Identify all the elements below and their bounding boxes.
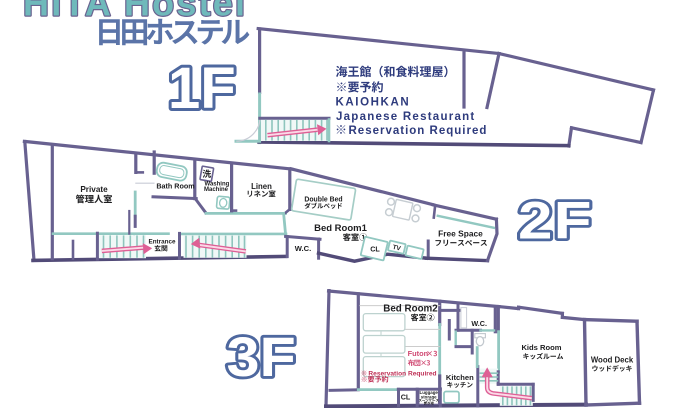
svg-text:W.C.: W.C. bbox=[471, 319, 487, 328]
svg-text:1F: 1F bbox=[168, 56, 236, 121]
svg-text:CL: CL bbox=[370, 245, 380, 254]
svg-text:Bed Room1: Bed Room1 bbox=[314, 223, 368, 234]
svg-text:Futon: Futon bbox=[408, 349, 429, 358]
svg-text:Wood Deck: Wood Deck bbox=[591, 355, 634, 364]
svg-text:Japanese Restaurant: Japanese Restaurant bbox=[336, 111, 475, 123]
svg-text:CL: CL bbox=[401, 393, 411, 402]
svg-text:Bath Room: Bath Room bbox=[156, 181, 194, 190]
svg-text:storage: storage bbox=[421, 394, 437, 399]
svg-text:Entrance: Entrance bbox=[149, 239, 176, 246]
svg-text:Kitchen: Kitchen bbox=[446, 373, 474, 382]
svg-text:Linen: Linen bbox=[251, 182, 272, 191]
svg-text:W.C.: W.C. bbox=[295, 244, 311, 253]
svg-text:KAIOHKAN: KAIOHKAN bbox=[336, 97, 411, 109]
svg-text:Free Space: Free Space bbox=[438, 229, 483, 239]
svg-text:Kids Room: Kids Room bbox=[521, 343, 561, 352]
svg-text:Double Bed: Double Bed bbox=[304, 196, 342, 203]
svg-text:Private: Private bbox=[80, 185, 108, 194]
svg-text:3F: 3F bbox=[227, 327, 296, 389]
svg-text:Reservation Required: Reservation Required bbox=[349, 125, 488, 137]
svg-text:Machine: Machine bbox=[204, 187, 229, 193]
svg-text:2F: 2F bbox=[518, 192, 593, 251]
